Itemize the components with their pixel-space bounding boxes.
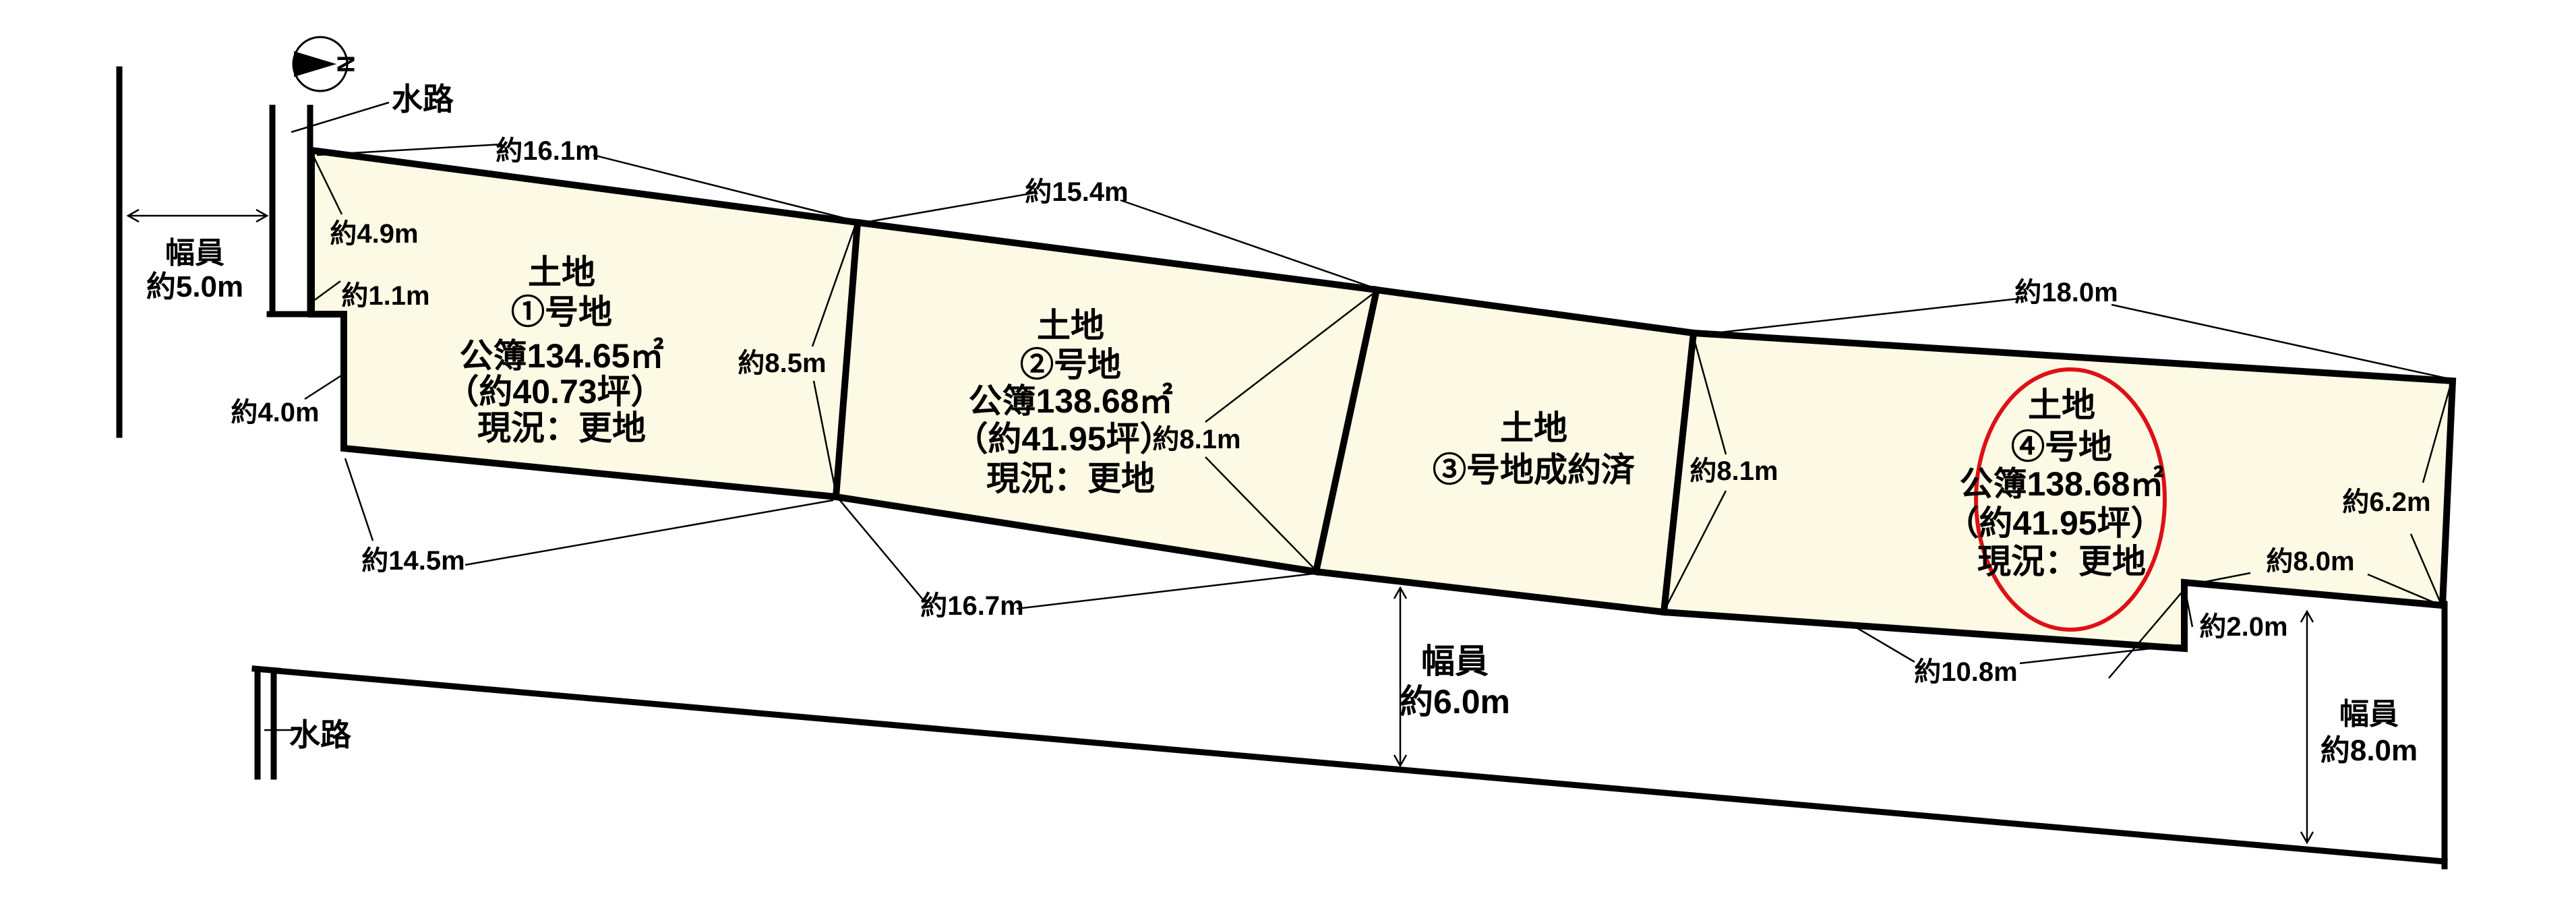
plot-4-area-tsubo: （約41.95坪） — [1945, 504, 2164, 542]
plot-2-area-tsubo: （約41.95坪） — [954, 420, 1173, 458]
plot-1-number: ①号地 — [511, 293, 612, 331]
plot-4-number: ④号地 — [2011, 428, 2112, 466]
dim-plot1-left-middle: 約1.1m — [341, 281, 429, 311]
dim-plot4-bottom-left: 約10.8m — [1914, 657, 2017, 687]
dim-plot4-right: 約6.2m — [2342, 487, 2430, 517]
waterway-bottom-label: 水路 — [289, 717, 352, 752]
compass-north-label: N — [332, 55, 360, 73]
dim-plot1-left-lower: 約4.0m — [231, 398, 319, 427]
dim-plot1-top: 約16.1m — [496, 136, 599, 166]
waterway-bottom-cap — [255, 669, 278, 671]
dim-plot2-right: 約8.1m — [1152, 425, 1240, 454]
dim-plot1-right: 約8.5m — [738, 349, 826, 378]
plot-3-title: 土地 — [1500, 409, 1567, 447]
right-road-width-line1: 幅員 — [2339, 698, 2399, 731]
dim-plot4-bottom-right: 約8.0m — [2266, 547, 2354, 576]
dim-plot4-top: 約18.0m — [2014, 278, 2118, 307]
dim-plot3-right: 約8.1m — [1689, 456, 1778, 486]
right-road-width-line2: 約8.0m — [2320, 734, 2418, 767]
dim-plot2-top: 約15.4m — [1025, 177, 1128, 207]
dim-plot1-bottom: 約14.5m — [361, 546, 465, 576]
plot-2-area-sqm: 公簿138.68㎡ — [969, 382, 1173, 420]
plot-2-title: 土地 — [1037, 307, 1104, 344]
plot-2-status: 現況：更地 — [986, 460, 1155, 497]
dim-plot4-step: 約2.0m — [2199, 612, 2287, 642]
plot-4-title: 土地 — [2028, 386, 2095, 424]
plot-2-number: ②号地 — [1020, 346, 1121, 384]
plot-4-area-sqm: 公簿138.68㎡ — [1960, 465, 2164, 503]
dim-plot1-left-upper: 約4.9m — [330, 219, 418, 249]
bottom-road-width-line2: 約6.0m — [1400, 683, 1510, 721]
dim-plot2-bottom: 約16.7m — [920, 591, 1023, 621]
land-plot-diagram: N 水路 水路 幅員 約5.0m 幅員 約6.0m 幅員 約8.0m 土地 ①号… — [0, 0, 2576, 906]
plot-1-status: 現況：更地 — [477, 409, 646, 447]
left-road-width-line1: 幅員 — [165, 237, 224, 270]
plot-1-title: 土地 — [528, 253, 595, 291]
plot-3-number: ③号地成約済 — [1433, 451, 1636, 489]
left-road-width-line2: 約5.0m — [146, 270, 243, 303]
plot-1-area-tsubo: （約40.73坪） — [445, 373, 664, 411]
bottom-road-width-line1: 幅員 — [1421, 642, 1489, 680]
waterway-top-label: 水路 — [392, 82, 454, 117]
plot-4-status: 現況：更地 — [1977, 543, 2146, 580]
plot-1-area-sqm: 公簿134.65㎡ — [460, 337, 664, 375]
